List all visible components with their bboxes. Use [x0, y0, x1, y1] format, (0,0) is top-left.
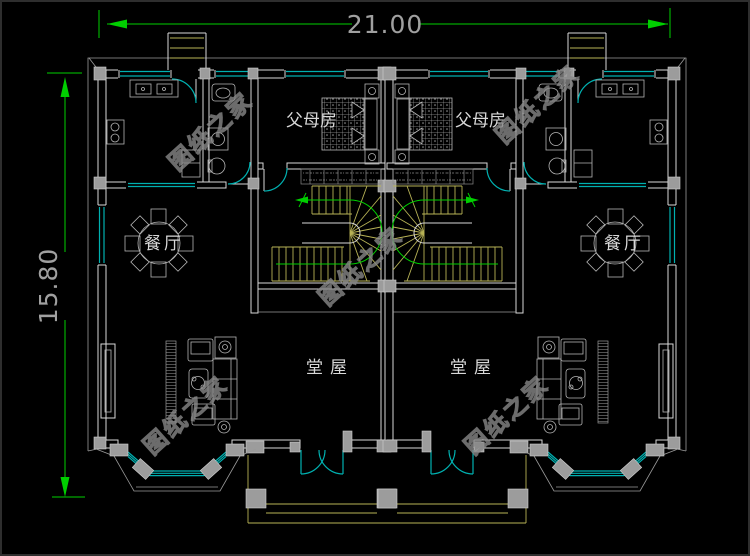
room-label-hall-left: 堂屋	[306, 358, 354, 378]
cad-viewport: 21.00 15.80 父母房 父母房 餐厅 餐厅 堂屋 堂屋 图纸之家 图纸之…	[0, 0, 750, 556]
dimension-top: 21.00	[99, 8, 670, 39]
room-label-dining-right: 餐厅	[604, 234, 644, 254]
watermark-text: 图纸之家	[163, 87, 258, 177]
dimension-width-label: 21.00	[347, 10, 424, 39]
dimension-left: 15.80	[34, 73, 85, 497]
dimension-height-label: 15.80	[34, 248, 63, 325]
watermark-text: 图纸之家	[138, 371, 233, 461]
floor-plan-drawing: 21.00 15.80 父母房 父母房 餐厅 餐厅 堂屋 堂屋 图纸之家 图纸之…	[0, 0, 750, 556]
room-label-hall-right: 堂屋	[450, 358, 498, 378]
room-label-dining-left: 餐厅	[144, 234, 184, 254]
room-label-parents-left: 父母房	[286, 111, 337, 131]
